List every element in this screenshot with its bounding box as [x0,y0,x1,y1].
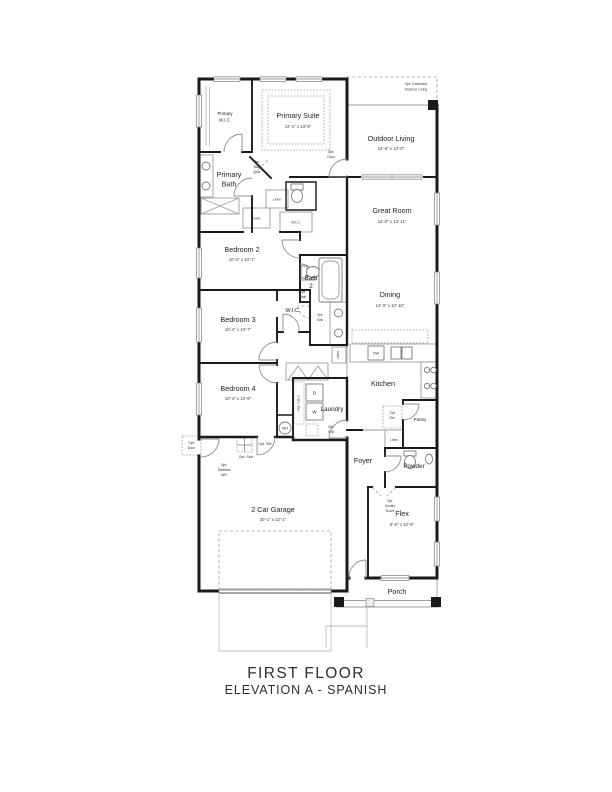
wc-toilet [291,184,303,203]
window [197,95,202,127]
primary-vanity [199,155,213,197]
label-opt-cabs: Opt. Cab.s [297,395,301,411]
label-primary-bath-1: Primary [217,170,242,179]
label-dining: Dining [380,290,400,299]
label-linen-2: Linen [253,217,261,221]
floorplan-page: Primary W.I.C. Primary Suite 12'-1" x 13… [0,0,612,792]
labels-layer: Primary W.I.C. Primary Suite 12'-1" x 13… [188,82,428,596]
label-flex: Flex [395,509,409,518]
powder-sink [426,454,433,464]
garage-entry-door [257,437,275,455]
label-opt-sink-laundry-1: Opt. [328,425,334,429]
window [435,542,440,566]
label-primary-bath-2: Bath [222,180,237,189]
label-bedroom2-dims: 10'-4" x 10'-1" [229,257,256,262]
label-opt-sink-garage: Opt. Sink [239,455,254,459]
wic-rod-lines [206,86,210,146]
opt-double-doors-leaves [372,487,396,496]
label-primary-wic-2: W.I.C. [219,118,231,123]
label-opt-tankless-2: Tankless [217,468,231,472]
plan-subtitle: ELEVATION A - SPANISH [0,683,612,697]
window [435,272,440,304]
label-opt-ref-1: Opt. [389,411,395,415]
label-opt-bathdoor-2: Bath [254,165,261,169]
bath2-sink-1 [335,309,343,317]
label-garage-dims: 20'-1" x 22'-1" [260,517,287,522]
bath2-sink-2 [335,329,343,337]
label-bedroom2: Bedroom 2 [224,245,259,254]
label-bedroom4-dims: 10'-4" x 10'-8" [225,396,252,401]
label-primary-suite-dims: 12'-1" x 13'-6" [285,124,312,129]
label-outdoor-living: Outdoor Living [368,134,415,143]
label-great-room-dims: 14'-0" x 13'-11" [378,219,407,224]
window [214,77,240,82]
label-opt-door-garage-2: Door [188,446,196,450]
porch-column-left [334,597,344,607]
window [381,576,409,581]
label-kitchen: Kitchen [371,379,395,388]
label-opt-door-suite-2: Door [327,155,335,159]
label-laundry: Laundry [321,406,345,413]
label-opt-sw: Opt. SW [258,442,272,446]
driveway [219,591,331,651]
label-bath2-1: Bath [305,275,318,282]
kitchen-island [352,330,428,343]
opt-laundry-sink [306,424,318,436]
label-garage: 2 Car Garage [251,505,295,514]
label-opt-extended-1: Opt. Extended [405,82,427,86]
label-dw: DW [373,352,380,356]
window [260,77,286,82]
label-linen-3: Linen [336,351,340,359]
garage-door-swing [219,531,331,589]
plan-title: FIRST FLOOR [0,665,612,683]
front-door [349,560,366,578]
window [435,497,440,521]
label-wh: WH [282,427,288,431]
label-bedroom4: Bedroom 4 [220,384,255,393]
walkway [326,607,367,648]
label-bedroom3-dims: 10'-4" x 10'-7" [225,327,252,332]
wic-door [224,134,242,152]
outdoor-living-column [428,100,438,110]
label-primary-suite: Primary Suite [276,111,319,120]
label-opt-bathdoor2-3: Door [300,300,308,304]
label-opt-dbl-3: Doors [386,509,395,513]
suite-outdoor-door [329,159,347,177]
label-primary-wic-1: Primary [217,111,233,116]
label-opt-ref-2: Ref. [390,416,396,420]
window [197,248,202,278]
label-foyer: Foyer [354,456,373,465]
label-porch: Porch [388,587,407,596]
porch-column-right [431,597,441,607]
primary-sink-2 [202,182,210,190]
bedroom4-door [259,365,277,383]
sliding-door [362,175,422,179]
label-opt-door-suite-1: Opt. [328,150,335,154]
window [197,308,202,342]
bedroom2-door [282,240,300,258]
label-opt-sink2-1: Opt. [317,313,323,317]
label-opt-dbl-1: Opt. [387,499,393,503]
wic3-door [283,314,299,332]
label-wic3: W.I.C. [285,308,301,314]
window [296,77,322,82]
window [435,193,440,225]
label-opt-sink-laundry-2: Sink [328,430,335,434]
garage-door [219,589,331,593]
label-opt-bathdoor-3: Door [254,170,262,174]
label-linen-4: Linen [390,438,398,442]
label-opt-tankless-3: WH [221,473,227,477]
label-dining-dims: 14'-0" x 10'-10" [376,303,405,308]
powder-door [385,456,401,472]
label-outdoor-living-dims: 14'-6" x 10'-0" [378,146,405,151]
label-opt-sink2-2: Sink [317,318,324,322]
label-opt-extended-2: Outdoor Living [405,88,428,92]
label-opt-bathdoor-1: Opt. [254,160,260,164]
bath2-vanity [330,302,347,345]
label-opt-dbl-2: Double [385,504,395,508]
label-powder: Powder [403,463,424,470]
primary-bath-door [234,178,252,196]
label-opt-door-garage-1: Opt. [188,441,195,445]
label-flex-dims: 9'-6" x 10'-9" [390,522,415,527]
primary-sink-1 [202,162,210,170]
label-bath2-2: 2 [309,283,313,290]
label-pantry: Pantry [414,417,427,422]
porch-post-base [366,599,374,607]
garage-side-door [201,439,219,457]
laundry-door [329,420,347,438]
label-dryer: D [313,391,316,396]
label-bed2-wic: W.I.C. [291,221,301,225]
label-linen-1: Linen [273,198,281,202]
label-bedroom3: Bedroom 3 [220,315,255,324]
bath2-tub [319,258,342,302]
label-opt-tankless-1: Opt. [221,463,228,467]
label-opt-bathdoor2-2: Bath [300,295,307,299]
label-great-room: Great Room [372,206,411,215]
window [197,383,202,415]
label-opt-bathdoor2-1: Opt. [300,290,306,294]
bedroom3-door [259,342,277,360]
